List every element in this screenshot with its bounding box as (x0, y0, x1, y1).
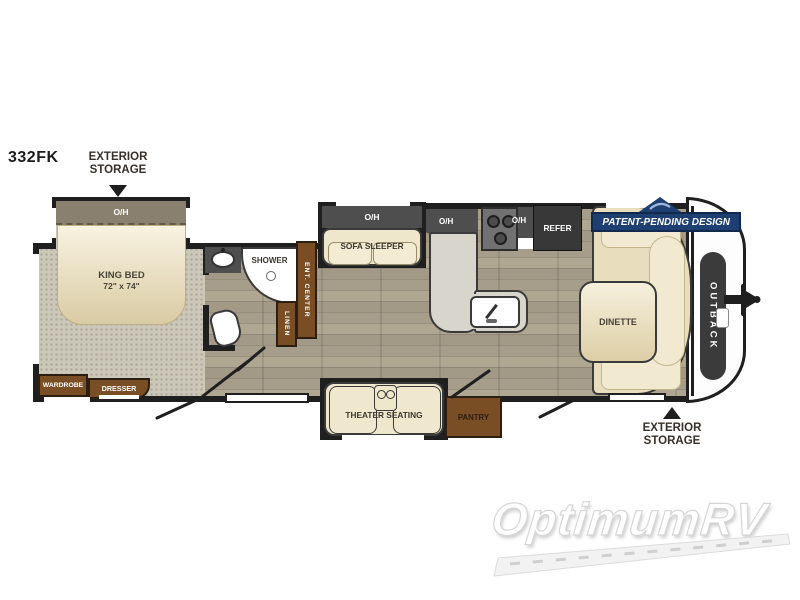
front-callout-arrow-icon (663, 407, 681, 419)
linen-label: LINEN (283, 311, 290, 336)
front-entry-door (608, 393, 666, 402)
pantry-label: PANTRY (458, 413, 489, 422)
rear-wall-window (33, 254, 39, 364)
dinette-label: DINETTE (581, 317, 655, 327)
bottom-wall-mid-segment (500, 396, 610, 402)
theater-seating: THEATER SEATING (324, 382, 444, 436)
shower-label: SHOWER (243, 256, 296, 265)
theater-console (374, 385, 397, 411)
theater-slide-window (342, 435, 424, 441)
patent-pending-banner: PATENT-PENDING DESIGN (591, 212, 741, 232)
burner-1 (487, 215, 500, 228)
front-callout-line2: STORAGE (628, 435, 716, 448)
kitchen-faucet (485, 304, 498, 319)
rear-callout-line1: EXTERIOR (70, 151, 166, 164)
sofa-overhead-cabinet: O/H (322, 206, 422, 228)
refrigerator: REFER (533, 205, 582, 251)
entry-door (225, 393, 309, 403)
refrigerator-label: REFER (543, 223, 571, 233)
dresser: DRESSER (88, 378, 150, 399)
wardrobe-label: WARDROBE (43, 382, 83, 389)
floorplan: O/H KING BED 72" x 74" WARDROBE DRESSER … (0, 0, 800, 600)
sofa-overhead-label: O/H (364, 212, 379, 222)
king-bed-size: 72" x 74" (58, 281, 185, 291)
bedroom-slide-window-right (186, 208, 190, 238)
bedroom-overhead-label: O/H (113, 207, 128, 217)
bedroom-overhead-cabinet: O/H (56, 201, 186, 225)
burner-3 (494, 232, 507, 245)
pantry: PANTRY (445, 396, 502, 438)
bath-faucet (221, 248, 225, 252)
ent-center-label: ENT. CENTER (303, 262, 310, 318)
shower-drain (266, 271, 276, 281)
rear-callout-line2: STORAGE (70, 164, 166, 177)
king-bed-label: KING BED (58, 270, 185, 281)
bedroom-slide-window-left (52, 208, 56, 238)
wardrobe: WARDROBE (38, 374, 88, 397)
entertainment-center: ENT. CENTER (296, 241, 317, 339)
kitchen-overhead-left-label: O/H (439, 217, 453, 226)
front-exterior-storage-callout: EXTERIOR STORAGE (628, 422, 716, 448)
watermark-road-icon (488, 528, 798, 588)
kitchen-overhead-right-label: O/H (504, 216, 534, 225)
bath-sink (211, 251, 235, 268)
dresser-label: DRESSER (102, 384, 137, 393)
cooktop-stove (481, 207, 518, 251)
hitch-tongue (722, 280, 768, 320)
linen-cabinet: LINEN (276, 301, 297, 347)
rear-callout-arrow-icon (109, 185, 127, 197)
sofa-slide-window (336, 202, 410, 206)
theater-seating-label: THEATER SEATING (326, 410, 442, 420)
kitchen-faucet-base (486, 319, 497, 323)
dresser-drawer (99, 395, 139, 399)
king-bed: KING BED 72" x 74" (57, 225, 186, 325)
cupholder-2 (386, 390, 395, 399)
rear-bottom-window (44, 397, 90, 402)
front-callout-line1: EXTERIOR (628, 422, 716, 435)
model-number: 332FK (8, 149, 59, 167)
cupholder-1 (377, 390, 386, 399)
sofa-sleeper: SOFA SLEEPER (322, 228, 422, 266)
kitchen-sink (470, 296, 520, 328)
patent-pending-label: PATENT-PENDING DESIGN (602, 216, 730, 228)
dinette-table: DINETTE (579, 281, 657, 363)
sofa-sleeper-label: SOFA SLEEPER (324, 241, 420, 251)
rear-exterior-storage-callout: EXTERIOR STORAGE (70, 151, 166, 177)
